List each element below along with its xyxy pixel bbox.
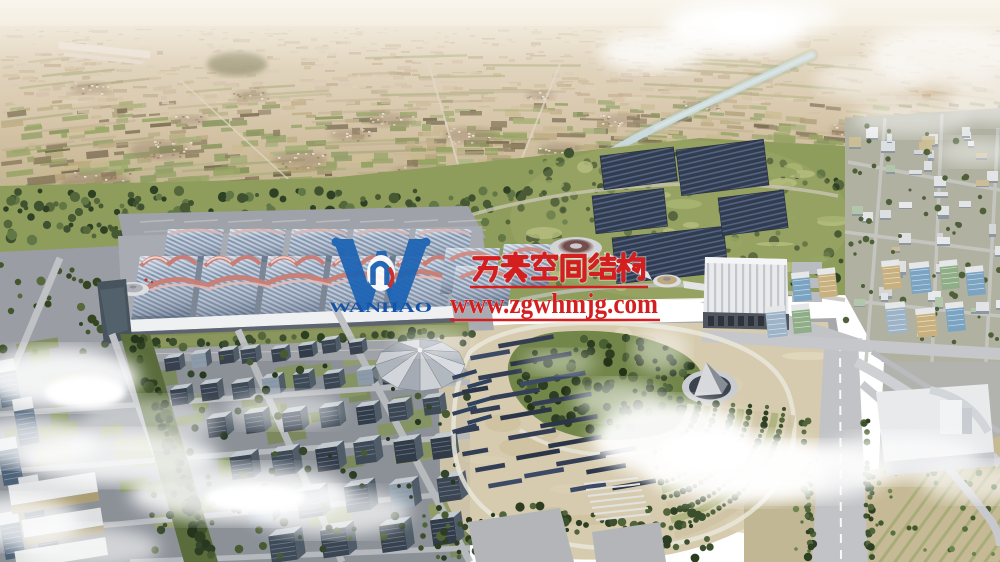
svg-text:www.zgwhmjg.com: www.zgwhmjg.com — [450, 289, 658, 320]
svg-text:WANHAO: WANHAO — [329, 300, 432, 316]
